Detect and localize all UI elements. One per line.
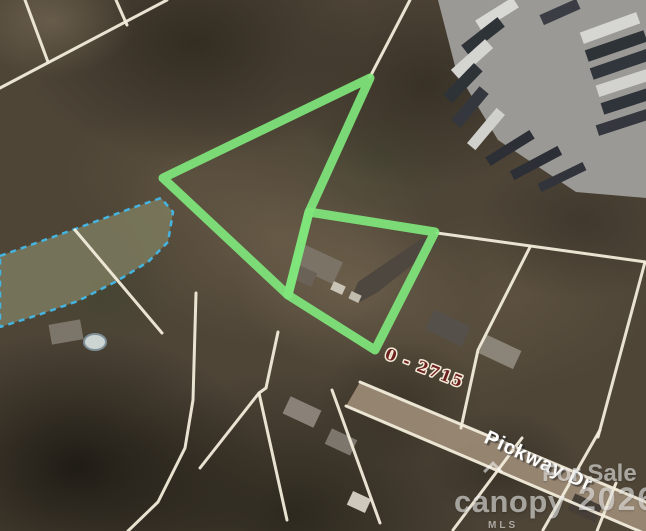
house-roof: [479, 335, 522, 369]
house-roof: [283, 396, 322, 428]
house-roof: [425, 310, 471, 347]
parcel-line: [370, 0, 410, 77]
pond: [0, 198, 173, 327]
parcel-line: [0, 0, 167, 88]
parcel-line: [200, 393, 259, 468]
parcel-range-label: 0 - 2715: [383, 344, 467, 392]
parcel-line: [437, 233, 646, 262]
house-roof: [347, 491, 371, 513]
parcel-line: [598, 262, 645, 437]
parcel-line: [461, 247, 530, 428]
pond-layer: [0, 198, 173, 327]
highlight-parcel-layer: [163, 78, 435, 350]
parcel-line: [25, 0, 48, 62]
parcel-line: [259, 332, 287, 520]
house-roof: [325, 428, 358, 455]
map-svg: Pickway Dr Pickway Dr 0 - 2715: [0, 0, 646, 531]
parcel-line: [128, 293, 196, 531]
pool: [84, 334, 106, 350]
industrial-yard-layer: [438, 0, 646, 198]
house-roof: [49, 319, 84, 344]
parcel-line: [116, 0, 127, 25]
aerial-map[interactable]: Pickway Dr Pickway Dr 0 - 2715 For Sale …: [0, 0, 646, 531]
